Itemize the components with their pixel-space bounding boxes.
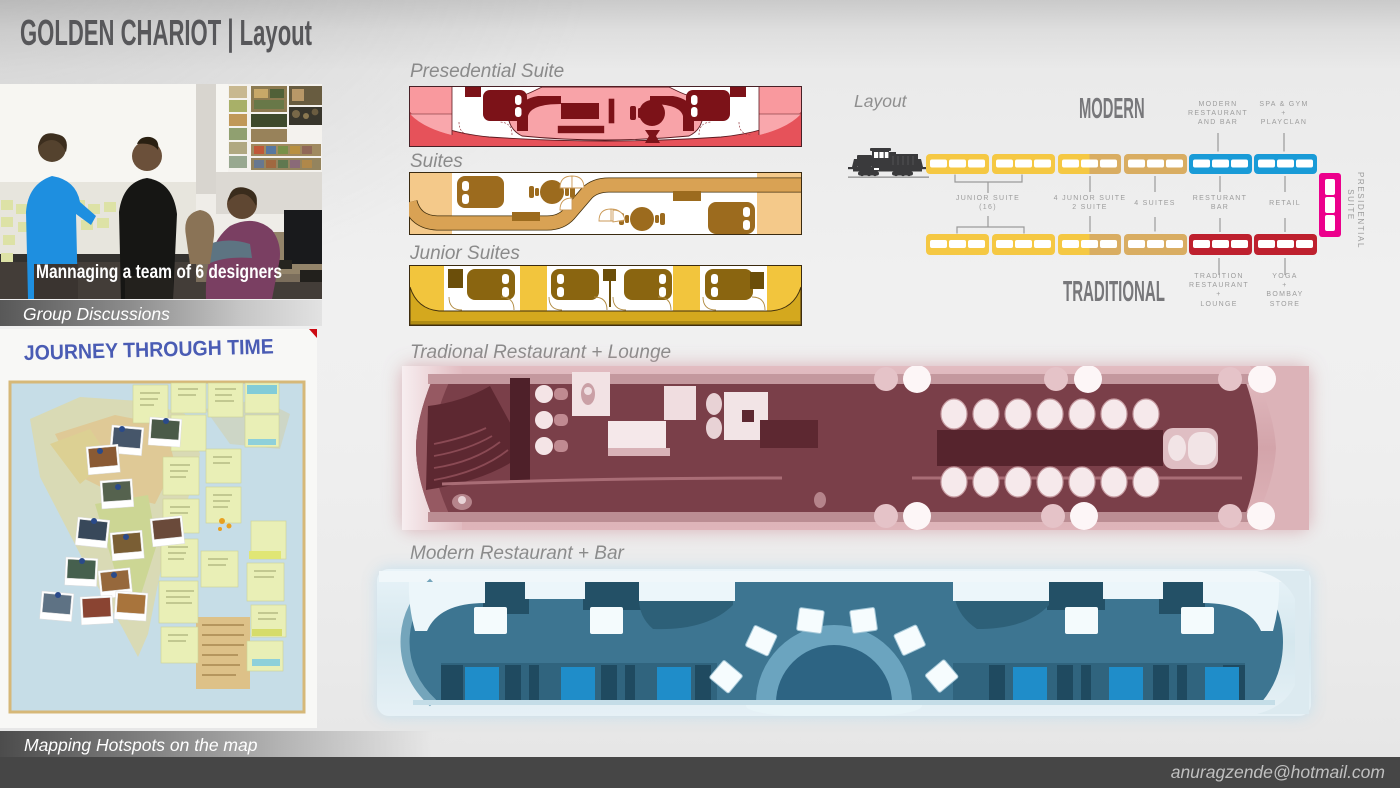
svg-text:Mannaging a team of 6 designer: Mannaging a team of 6 designers xyxy=(36,261,282,283)
